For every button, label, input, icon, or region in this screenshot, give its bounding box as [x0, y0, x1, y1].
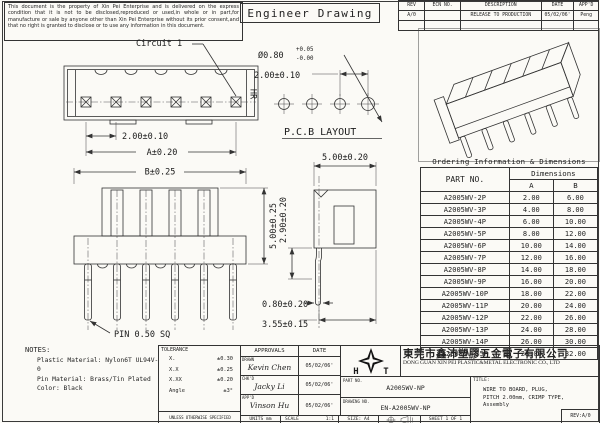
hole-diameter-dimension: Ø0.80: [258, 50, 284, 61]
rev-col-header: REV: [399, 1, 425, 11]
drawing-description: WIRE TO BOARD, PLUG, PITCH 2.00mm, CRIMP…: [471, 377, 599, 410]
dimensions-header: Dimensions: [509, 168, 597, 180]
chkd-date: 05/02/06': [299, 376, 341, 395]
appd-date: 05/02/06': [299, 395, 341, 416]
ecn-value: [425, 11, 461, 21]
drawing-title-box: Engineer Drawing: [240, 3, 380, 23]
company-logo: H T: [341, 346, 401, 377]
drawn-signature: Kevin Chen: [241, 363, 298, 372]
table-row: A2005WV-13P24.0028.00: [421, 324, 598, 336]
tolerance-box: TOLERANCE X.±0.30 X.X±0.25 X.XX±0.20 Ang…: [159, 346, 241, 423]
table-row: A2005WV-4P6.0010.00: [421, 216, 598, 228]
description-col-header: DESCRIPTION: [460, 1, 541, 11]
company-block: 東莞市鑫沛塑膠五金電子有限公司 DONG GUAN XIN PEI PLASTI…: [401, 346, 599, 377]
profile-view-drawing: 5.00±0.20 2.90±0.20 0.80±0.20 3.55±0.15: [262, 146, 418, 338]
table-row: A2005WV-5P8.0012.00: [421, 228, 598, 240]
appd-signature: Vinson Hu: [241, 401, 298, 410]
projection-symbols-cell: [379, 416, 421, 423]
company-name-cn: 東莞市鑫沛塑膠五金電子有限公司: [403, 348, 599, 360]
ordering-table: PART NO. Dimensions A B A2005WV-2P2.006.…: [420, 167, 598, 360]
drawn-cell: DRAWN Kevin Chen: [241, 357, 299, 376]
projection-circle-icon: [386, 416, 396, 423]
table-row: A2005WV-9P16.0020.00: [421, 276, 598, 288]
pins: [85, 264, 237, 320]
bottom-strip: UNITS mm SCALE1:1 SIZE: A4 SHEET 1 OF 1: [241, 415, 471, 423]
note-plastic-material: Plastic Material: Nylon6T UL94V-0: [25, 356, 160, 375]
table-row: A2005WV-6P10.0014.00: [421, 240, 598, 252]
table-row: A2005WV-3P4.008.00: [421, 204, 598, 216]
dim-b-header: B: [553, 180, 597, 192]
ecn-col-header: ECN NO.: [425, 1, 461, 11]
top-view-drawing: B±0.25 5.00±0.25: [50, 160, 282, 340]
overall-b-dimension: B±0.25: [145, 168, 176, 178]
hole-tol-minus: -0.00: [296, 56, 314, 62]
pcb-layout-caption: P.C.B LAYOUT: [284, 127, 356, 138]
pitch-dimension: 2.00±0.10: [122, 132, 168, 142]
chkd-cell: CHK'D Jacky Li: [241, 376, 299, 395]
depth-dimension: 2.90±0.20: [279, 197, 289, 243]
pcb-holes: [274, 93, 379, 115]
isometric-connector-body: [431, 43, 594, 162]
table-row: A2005WV-12P22.0026.00: [421, 312, 598, 324]
dim-a-header: A: [509, 180, 553, 192]
notes-heading: NOTES:: [25, 346, 50, 354]
drawing-no-value: EN-A2005WV-NP: [341, 404, 470, 412]
pin-size-label: PIN 0.50 SQ: [114, 330, 170, 340]
units-cell: UNITS mm: [241, 416, 281, 423]
tolerance-footer: UNLESS OTHERWISE SPECIFIED: [159, 411, 241, 423]
isometric-view-drawing: [418, 28, 600, 162]
table-row: A2005WV-10P18.0022.00: [421, 288, 598, 300]
ordering-table-title: Ordering Information & Dimensions: [420, 156, 598, 167]
rev-box: REV:A/0: [561, 409, 599, 423]
title-cell: TITLE: WIRE TO BOARD, PLUG, PITCH 2.00mm…: [471, 377, 599, 423]
disclaimer-text: This document is the property of Xin Pei…: [8, 4, 239, 29]
star-logo-icon: H T: [341, 346, 401, 377]
tolerance-heading: TOLERANCE: [159, 346, 240, 354]
part-no-header: PART NO.: [421, 168, 510, 192]
table-row: A2005WV-7P12.0016.00: [421, 252, 598, 264]
date-col-header: DATE: [541, 1, 574, 11]
circuit1-label: Circuit 1: [136, 39, 182, 49]
pin-centerlines: [88, 190, 233, 330]
company-name-en: DONG GUAN XIN PEI PLASTIC&METAL ELECTRON…: [403, 360, 599, 366]
projection-cone-icon: [400, 416, 413, 423]
approvals-header: APPROVALS: [241, 346, 299, 357]
logo-letter-h: H: [353, 367, 358, 377]
table-row: A2005WV-11P20.0024.00: [421, 300, 598, 312]
table-row: A2005WV-2P2.006.00: [421, 192, 598, 204]
hole-tol-plus: +0.05: [296, 47, 314, 53]
ordering-info-section: Ordering Information & Dimensions PART N…: [420, 156, 598, 360]
drawing-no-cell: DRAWING NO. EN-A2005WV-NP: [341, 398, 471, 415]
front-view-drawing: Circuit 1 HR 2.00±0.10 A±0.20: [52, 36, 270, 158]
appd-cell: APP'D Vinson Hu: [241, 395, 299, 416]
drawn-date: 05/02/06': [299, 357, 341, 376]
appd-col-header: APP'D: [574, 1, 599, 11]
width-dimension: 5.00±0.20: [322, 153, 368, 163]
sheet-cell: SHEET 1 OF 1: [421, 416, 471, 423]
date-header: DATE: [299, 346, 341, 357]
overall-a-dimension: A±0.20: [147, 148, 178, 158]
pcb-pitch-dimension: 2.00±0.10: [254, 71, 300, 81]
table-row: A2005WV-8P14.0018.00: [421, 264, 598, 276]
title-block: TOLERANCE X.±0.30 X.X±0.25 X.XX±0.20 Ang…: [158, 345, 600, 423]
pcb-layout-drawing: Ø0.80 +0.05 -0.00 2.00±0.10 P.C.B LAYOUT: [252, 40, 408, 142]
logo-letter-t: T: [383, 367, 389, 377]
revision-header-row: REV ECN NO. DESCRIPTION DATE APP'D: [399, 1, 599, 11]
rev-value: A/0: [399, 11, 425, 21]
size-cell: SIZE: A4: [339, 416, 379, 423]
note-color: Color: Black: [25, 384, 160, 394]
drawing-title: Engineer Drawing: [247, 7, 372, 20]
note-pin-material: Pin Material: Brass/Tin Plated: [25, 375, 160, 385]
engineering-drawing-sheet: This document is the property of Xin Pei…: [0, 0, 600, 423]
pin-offset-dimension: 3.55±0.15: [262, 320, 308, 330]
appd-value: Peng: [574, 11, 599, 21]
part-no-cell: PART NO. A2005WV-NP: [341, 377, 471, 398]
shroud-slots: [111, 190, 210, 236]
chkd-signature: Jacky Li: [241, 382, 298, 391]
notes-section: NOTES: Plastic Material: Nylon6T UL94V-0…: [25, 346, 160, 394]
pin-width-dimension: 0.80±0.20: [262, 300, 308, 310]
part-no-value: A2005WV-NP: [341, 384, 470, 392]
date-value: 05/02/06': [541, 11, 574, 21]
revision-row: A/0 RELEASE TO PRODUCTION 05/02/06' Peng: [399, 11, 599, 21]
description-value: RELEASE TO PRODUCTION: [460, 11, 541, 21]
scale-cell: SCALE1:1: [281, 416, 339, 423]
revision-table: REV ECN NO. DESCRIPTION DATE APP'D A/0 R…: [398, 0, 599, 31]
